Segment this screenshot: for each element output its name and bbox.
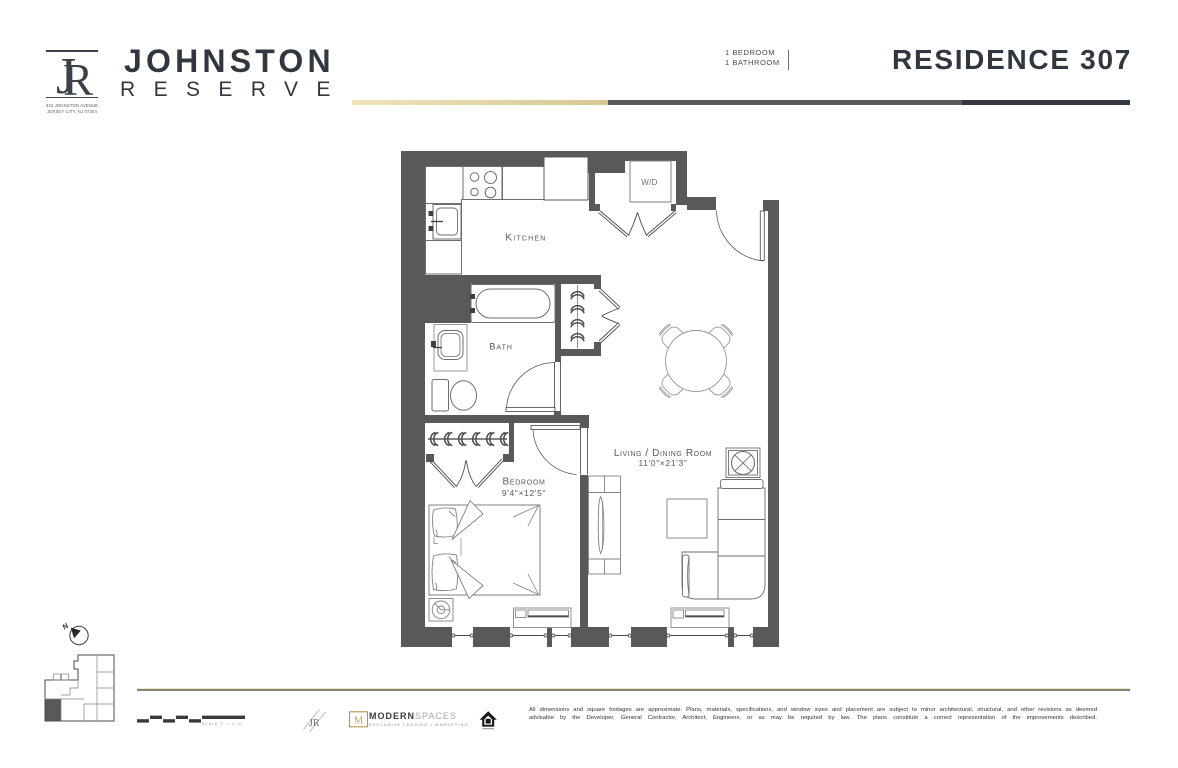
svg-text:M: M xyxy=(354,716,364,727)
svg-text:9'4"×12'5": 9'4"×12'5" xyxy=(502,488,546,498)
svg-text:Kitchen: Kitchen xyxy=(505,233,546,244)
svg-text:SCALE 1" = 1'-0": SCALE 1" = 1'-0" xyxy=(202,722,244,726)
svg-text:JR: JR xyxy=(309,718,320,729)
svg-text:Bedroom: Bedroom xyxy=(502,477,545,488)
svg-text:Bath: Bath xyxy=(489,342,513,353)
svg-text:W/D: W/D xyxy=(641,178,657,187)
svg-text:N: N xyxy=(60,621,70,632)
svg-text:11'0"×21'3": 11'0"×21'3" xyxy=(638,458,687,468)
